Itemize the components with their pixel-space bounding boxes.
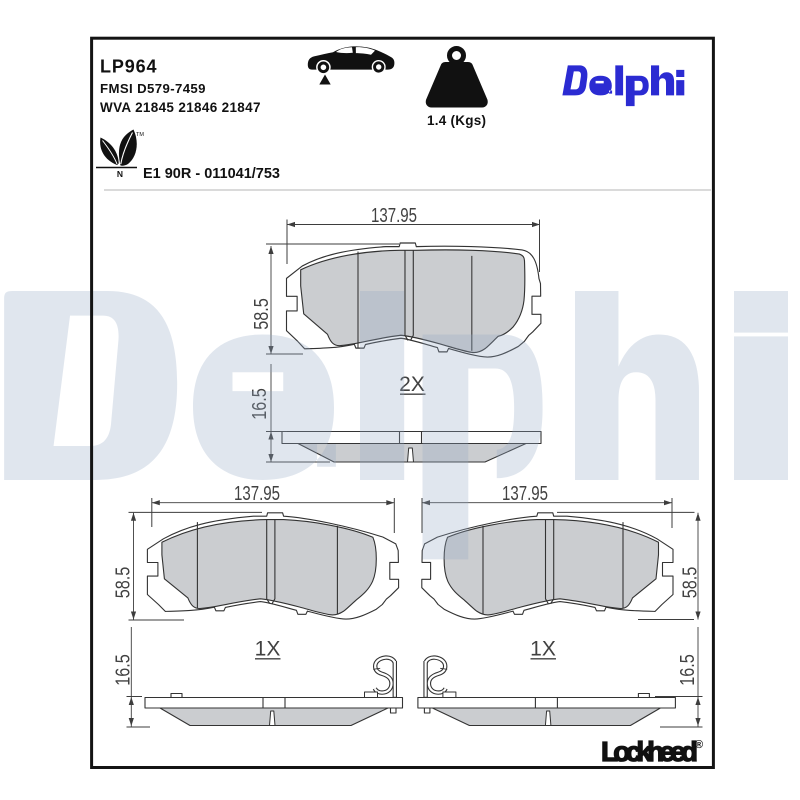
- svg-text:Lockheed: Lockheed: [601, 736, 698, 767]
- svg-text:58.5: 58.5: [680, 567, 702, 599]
- svg-text:1X: 1X: [255, 638, 281, 661]
- svg-text:137.95: 137.95: [371, 205, 417, 227]
- svg-text:E1 90R - 011041/753: E1 90R - 011041/753: [143, 166, 280, 182]
- svg-text:137.95: 137.95: [502, 483, 548, 505]
- svg-text:LP964: LP964: [100, 57, 157, 77]
- svg-text:N: N: [117, 169, 123, 179]
- svg-text:58.5: 58.5: [113, 567, 135, 599]
- svg-text:16.5: 16.5: [677, 654, 699, 686]
- svg-text:58.5: 58.5: [251, 298, 273, 330]
- svg-text:WVA 21845 21846 21847: WVA 21845 21846 21847: [100, 100, 261, 115]
- svg-text:FMSI D579-7459: FMSI D579-7459: [100, 81, 206, 96]
- svg-text:1.4 (Kgs): 1.4 (Kgs): [427, 113, 486, 128]
- svg-text:TM: TM: [136, 132, 144, 138]
- svg-text:16.5: 16.5: [113, 654, 135, 686]
- svg-text:1X: 1X: [530, 638, 556, 661]
- svg-text:137.95: 137.95: [234, 483, 280, 505]
- svg-text:®: ®: [695, 739, 703, 751]
